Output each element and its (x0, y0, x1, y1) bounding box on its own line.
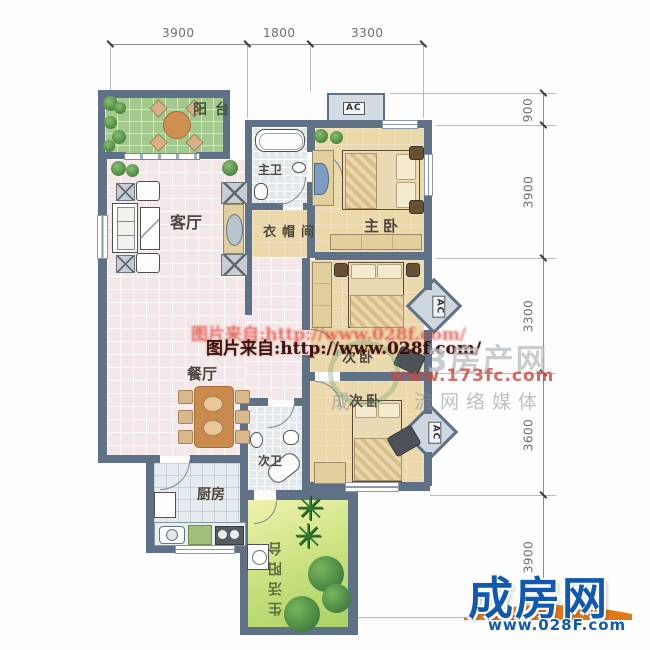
dining-chair (178, 410, 193, 424)
window (424, 154, 433, 196)
room-label-master-bed: 主卧 (364, 215, 402, 236)
nightstand (406, 263, 420, 277)
armchair (136, 253, 160, 273)
dining-chair (178, 390, 193, 404)
wall-segment (348, 500, 358, 630)
wardrobe (330, 234, 422, 250)
nightstand (334, 263, 348, 277)
room-label-kitchen: 厨房 (197, 484, 225, 504)
bathroom-sink (250, 432, 263, 448)
plant-icon (314, 129, 328, 143)
plant-icon (126, 164, 139, 177)
armchair (136, 181, 160, 201)
plant-icon (103, 140, 115, 152)
watermark-portal-url: www.173fc.com (390, 366, 554, 386)
wall-segment (294, 398, 310, 406)
tv (226, 214, 243, 246)
window (345, 482, 399, 492)
room-label-utility-balcony: 生活阳台 (266, 508, 286, 616)
dining-chair (235, 390, 250, 404)
dim-ext (423, 44, 424, 118)
dining-chair (235, 430, 250, 444)
balcony-sliding-door (124, 153, 200, 160)
wall-segment (424, 452, 432, 486)
dim-ext (436, 125, 556, 126)
plant-icon (330, 131, 343, 144)
dim-ext (436, 258, 556, 259)
wall-segment (240, 490, 254, 500)
pillow (351, 264, 376, 279)
wall-segment (98, 90, 230, 98)
room-label-living: 客厅 (170, 209, 202, 233)
dining-chair (178, 430, 193, 444)
dresser (314, 462, 346, 484)
nightstand (409, 146, 424, 160)
sofa-cushion (117, 221, 135, 236)
ac-label-bay-lower: AC (428, 422, 441, 444)
plant-icon (222, 160, 238, 176)
wall-segment (245, 120, 313, 127)
wardrobe (312, 262, 332, 328)
dim-ext (390, 93, 556, 94)
wall-segment (315, 252, 432, 260)
floor-plan-image: 3900 1800 3300 900 3900 3300 3600 3900 A… (0, 0, 650, 650)
washer-door (252, 550, 267, 565)
wall-segment (98, 152, 107, 462)
plant-stand (221, 182, 248, 204)
dim-ext (247, 44, 248, 118)
dim-label-right-3: 3300 (521, 300, 535, 333)
wall-segment (245, 120, 252, 315)
mirror (314, 163, 329, 195)
room-label-dining: 餐厅 (187, 363, 217, 384)
side-table (116, 255, 135, 273)
wall-segment (302, 372, 315, 381)
wall-segment (196, 152, 230, 159)
dim-label-right-4: 3600 (521, 419, 535, 452)
watermark-tagline-right: 流网络媒体 (414, 387, 544, 414)
window (97, 215, 108, 259)
counter-plants (188, 525, 212, 545)
balcony-table (163, 111, 191, 139)
palm-tree-icon: ✳ (294, 520, 323, 554)
side-table (116, 183, 135, 201)
bathtub-inner (259, 133, 303, 150)
plant-icon (114, 102, 126, 114)
sofa-cushion (117, 235, 135, 250)
table-setting (203, 420, 223, 436)
dim-label-right-1: 900 (521, 98, 535, 122)
dim-label-right-2: 3900 (521, 176, 535, 209)
dim-label-top-3: 3300 (351, 26, 384, 40)
plant-icon (104, 116, 117, 129)
bush-icon (322, 584, 351, 613)
toilet (283, 430, 299, 445)
watermark-tagline-left: 成 (331, 387, 357, 414)
ac-label-bay-upper: AC (432, 296, 445, 318)
window (382, 120, 418, 129)
dim-label-top-1: 3900 (162, 26, 195, 40)
wall-segment (424, 262, 432, 290)
wall-segment (146, 455, 154, 553)
dim-ext (430, 495, 556, 496)
table-setting (203, 396, 223, 412)
dim-label-top-2: 1800 (263, 26, 296, 40)
burner (230, 530, 239, 539)
room-label-closet: 衣帽间 (263, 221, 320, 240)
bathroom-sink (292, 162, 306, 173)
ac-label-top: AC (343, 102, 365, 115)
coffee-table (140, 207, 160, 250)
plant-icon (111, 161, 126, 176)
logo-url: www.028F.com (488, 616, 626, 634)
dim-ext (310, 44, 311, 92)
window (175, 545, 235, 554)
dim-line-top (110, 44, 423, 45)
room-label-balcony: 阳台 (193, 99, 237, 119)
pillow (377, 264, 402, 279)
plant-stand (221, 254, 248, 276)
room-label-second-bath: 次卫 (258, 452, 282, 469)
nightstand (409, 200, 424, 214)
room-label-master-bath: 主卫 (258, 161, 282, 178)
bed-quilt (345, 153, 377, 209)
toilet (254, 183, 268, 200)
sofa-cushion (117, 207, 135, 222)
dining-chair (235, 410, 250, 424)
fridge (154, 492, 176, 518)
burner (218, 530, 227, 539)
bush-icon (284, 596, 320, 632)
dim-ext (110, 44, 111, 90)
sink-basin (166, 529, 178, 541)
